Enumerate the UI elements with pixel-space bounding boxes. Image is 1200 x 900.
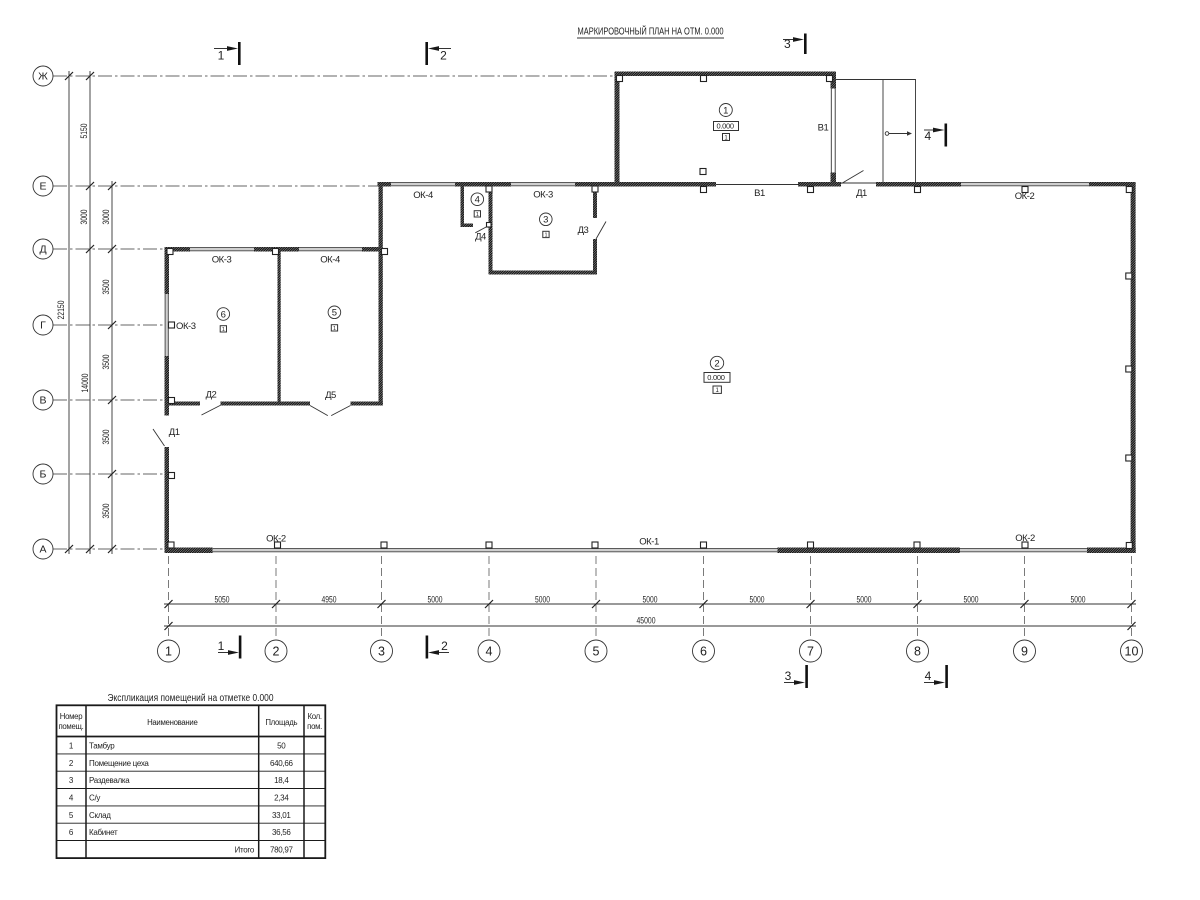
svg-text:В1: В1 bbox=[754, 188, 765, 199]
svg-text:Тамбур: Тамбур bbox=[89, 741, 115, 750]
svg-text:50: 50 bbox=[277, 741, 286, 750]
svg-text:Итого: Итого bbox=[235, 846, 255, 855]
svg-text:пом.: пом. bbox=[307, 722, 322, 731]
svg-text:33,01: 33,01 bbox=[272, 811, 291, 820]
svg-text:5: 5 bbox=[332, 308, 337, 319]
svg-text:3000: 3000 bbox=[101, 210, 112, 225]
svg-text:Кол.: Кол. bbox=[307, 712, 321, 721]
svg-text:А: А bbox=[39, 544, 46, 556]
svg-text:1: 1 bbox=[476, 212, 479, 218]
svg-text:780,97: 780,97 bbox=[270, 846, 294, 855]
svg-text:2,34: 2,34 bbox=[274, 793, 289, 802]
svg-text:640,66: 640,66 bbox=[270, 759, 294, 768]
svg-text:18,4: 18,4 bbox=[274, 776, 289, 785]
svg-text:4950: 4950 bbox=[322, 595, 337, 606]
svg-text:3500: 3500 bbox=[101, 430, 112, 445]
svg-text:10: 10 bbox=[1125, 644, 1139, 658]
svg-text:помещ.: помещ. bbox=[58, 722, 83, 731]
svg-text:2: 2 bbox=[273, 644, 280, 658]
svg-text:Номер: Номер bbox=[60, 712, 83, 721]
svg-text:В: В bbox=[39, 395, 46, 407]
svg-text:В1: В1 bbox=[818, 123, 829, 134]
svg-text:ОК-2: ОК-2 bbox=[266, 534, 286, 545]
svg-text:Склад: Склад bbox=[89, 811, 111, 820]
svg-text:1: 1 bbox=[165, 644, 172, 658]
svg-text:22150: 22150 bbox=[56, 301, 67, 320]
svg-text:Д3: Д3 bbox=[578, 225, 589, 236]
svg-text:Д2: Д2 bbox=[206, 390, 217, 401]
svg-text:Д1: Д1 bbox=[856, 188, 867, 199]
svg-text:5050: 5050 bbox=[215, 595, 230, 606]
svg-text:5000: 5000 bbox=[1071, 595, 1086, 606]
svg-text:МАРКИРОВОЧНЫЙ ПЛАН НА ОТМ. 0.0: МАРКИРОВОЧНЫЙ ПЛАН НА ОТМ. 0.000 bbox=[578, 25, 724, 38]
svg-text:36,56: 36,56 bbox=[272, 828, 291, 837]
svg-text:5000: 5000 bbox=[428, 595, 443, 606]
svg-text:2: 2 bbox=[441, 639, 448, 653]
svg-text:14000: 14000 bbox=[80, 374, 91, 393]
svg-text:5000: 5000 bbox=[964, 595, 979, 606]
svg-text:5000: 5000 bbox=[857, 595, 872, 606]
svg-text:5000: 5000 bbox=[750, 595, 765, 606]
svg-text:5000: 5000 bbox=[643, 595, 658, 606]
svg-text:ОК-1: ОК-1 bbox=[639, 537, 659, 548]
svg-text:0.000: 0.000 bbox=[717, 122, 734, 131]
svg-text:ОК-2: ОК-2 bbox=[1015, 191, 1035, 202]
svg-text:Д5: Д5 bbox=[325, 390, 336, 401]
svg-text:4: 4 bbox=[486, 644, 493, 658]
svg-text:0.000: 0.000 bbox=[707, 373, 724, 382]
svg-text:ОК-2: ОК-2 bbox=[1015, 533, 1035, 544]
svg-text:3500: 3500 bbox=[101, 504, 112, 519]
svg-text:1: 1 bbox=[218, 49, 225, 63]
svg-text:5000: 5000 bbox=[535, 595, 550, 606]
svg-text:ОК-3: ОК-3 bbox=[176, 321, 196, 332]
svg-text:3: 3 bbox=[784, 37, 791, 51]
svg-text:Наименование: Наименование bbox=[147, 718, 197, 727]
svg-text:4: 4 bbox=[925, 129, 932, 143]
svg-text:5: 5 bbox=[593, 644, 600, 658]
svg-text:Ж: Ж bbox=[38, 71, 48, 83]
svg-text:Площадь: Площадь bbox=[265, 718, 297, 727]
svg-text:3: 3 bbox=[785, 669, 792, 683]
svg-text:5150: 5150 bbox=[79, 124, 90, 139]
svg-text:3500: 3500 bbox=[101, 355, 112, 370]
svg-text:6: 6 bbox=[221, 309, 226, 320]
svg-text:ОК-3: ОК-3 bbox=[212, 255, 232, 266]
svg-text:6: 6 bbox=[700, 644, 707, 658]
svg-text:3500: 3500 bbox=[101, 280, 112, 295]
svg-text:ОК-4: ОК-4 bbox=[413, 190, 433, 201]
svg-text:4: 4 bbox=[475, 195, 480, 206]
svg-text:Кабинет: Кабинет bbox=[89, 828, 118, 837]
svg-text:Экспликация помещений на отмет: Экспликация помещений на отметке 0.000 bbox=[108, 693, 274, 704]
svg-text:1: 1 bbox=[222, 327, 225, 333]
svg-text:1: 1 bbox=[333, 326, 336, 332]
svg-text:ОК-4: ОК-4 bbox=[320, 255, 340, 266]
svg-text:3: 3 bbox=[543, 215, 548, 226]
svg-text:3: 3 bbox=[378, 644, 385, 658]
svg-text:8: 8 bbox=[914, 644, 921, 658]
svg-text:Помещение цеха: Помещение цеха bbox=[89, 759, 149, 768]
svg-text:3000: 3000 bbox=[79, 210, 90, 225]
svg-text:Раздевалка: Раздевалка bbox=[89, 776, 130, 785]
svg-text:Г: Г bbox=[40, 320, 46, 332]
svg-text:ОК-3: ОК-3 bbox=[533, 190, 553, 201]
svg-text:С/у: С/у bbox=[89, 793, 100, 802]
svg-text:Д1: Д1 bbox=[169, 427, 180, 438]
svg-text:7: 7 bbox=[807, 644, 814, 658]
svg-text:1: 1 bbox=[218, 639, 225, 653]
svg-text:45000: 45000 bbox=[637, 616, 656, 627]
svg-text:1: 1 bbox=[544, 233, 547, 239]
svg-text:Д: Д bbox=[39, 244, 46, 256]
svg-text:2: 2 bbox=[714, 358, 719, 369]
svg-text:2: 2 bbox=[440, 49, 447, 63]
svg-text:4: 4 bbox=[925, 669, 932, 683]
svg-text:9: 9 bbox=[1021, 644, 1028, 658]
svg-text:Е: Е bbox=[39, 181, 46, 193]
svg-text:1: 1 bbox=[723, 105, 728, 116]
svg-text:Б: Б bbox=[40, 469, 47, 481]
svg-text:Д4: Д4 bbox=[475, 232, 486, 243]
